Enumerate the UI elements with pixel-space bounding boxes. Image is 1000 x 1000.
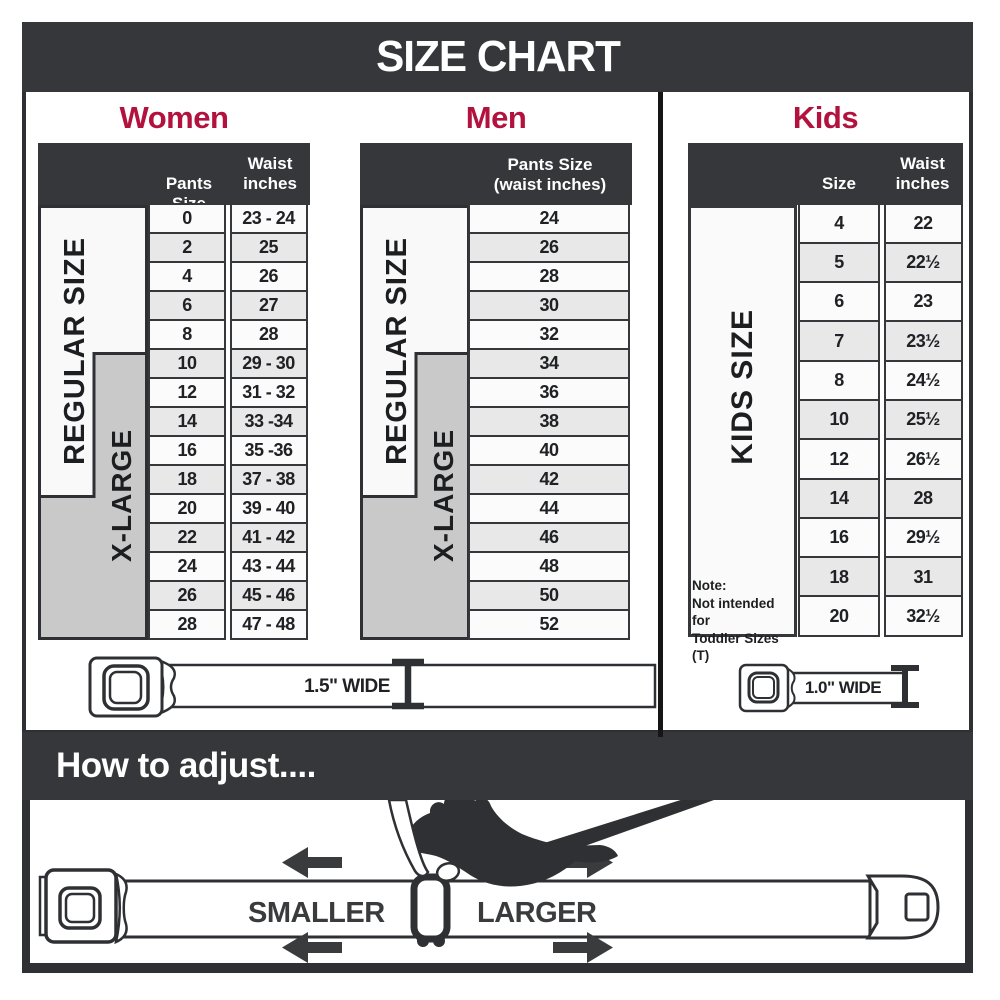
waist-cell: 31 - 32 bbox=[230, 377, 308, 409]
pants-size-cell: 2 bbox=[148, 232, 226, 264]
women-col-waist: Waist inches bbox=[230, 154, 310, 195]
waist-cell: 31 bbox=[884, 556, 963, 598]
table-row: 8 24½ bbox=[798, 360, 963, 402]
table-row: 32 bbox=[468, 319, 630, 351]
pants-size-cell: 40 bbox=[468, 435, 630, 467]
pants-size-cell: 38 bbox=[468, 406, 630, 438]
table-row: 2 25 bbox=[148, 232, 308, 264]
men-kids-divider bbox=[658, 92, 663, 737]
waist-cell: 27 bbox=[230, 290, 308, 322]
kid-size-cell: 14 bbox=[798, 478, 880, 520]
waist-cell: 45 - 46 bbox=[230, 580, 308, 612]
table-row: 4 22 bbox=[798, 203, 963, 245]
kids-col-waist: Waist inches bbox=[882, 154, 963, 195]
table-row: 22 41 - 42 bbox=[148, 522, 308, 554]
waist-cell: 43 - 44 bbox=[230, 551, 308, 583]
kid-size-cell: 6 bbox=[798, 281, 880, 323]
waist-cell: 23 - 24 bbox=[230, 203, 308, 235]
pants-size-cell: 50 bbox=[468, 580, 630, 612]
kid-size-cell: 18 bbox=[798, 556, 880, 598]
waist-cell: 25½ bbox=[884, 399, 963, 441]
table-row: 20 39 - 40 bbox=[148, 493, 308, 525]
how-to-adjust-heading: How to adjust.... bbox=[56, 746, 316, 786]
kids-note-line2: Not intended for bbox=[692, 595, 796, 630]
waist-cell: 29½ bbox=[884, 517, 963, 559]
table-row: 10 29 - 30 bbox=[148, 348, 308, 380]
table-row: 28 47 - 48 bbox=[148, 609, 308, 641]
table-row: 28 bbox=[468, 261, 630, 293]
pants-size-cell: 26 bbox=[468, 232, 630, 264]
title-bar: SIZE CHART bbox=[22, 22, 973, 92]
table-row: 44 bbox=[468, 493, 630, 525]
pants-size-cell: 20 bbox=[148, 493, 226, 525]
table-row: 12 26½ bbox=[798, 438, 963, 480]
waist-cell: 23 bbox=[884, 281, 963, 323]
pants-size-cell: 46 bbox=[468, 522, 630, 554]
kids-note-line1: Note: bbox=[692, 577, 796, 595]
kid-size-cell: 4 bbox=[798, 203, 880, 245]
waist-cell: 29 - 30 bbox=[230, 348, 308, 380]
pants-size-cell: 26 bbox=[148, 580, 226, 612]
kids-buckle-button bbox=[753, 677, 774, 698]
pants-size-cell: 48 bbox=[468, 551, 630, 583]
waist-cell: 22½ bbox=[884, 242, 963, 284]
kid-size-cell: 16 bbox=[798, 517, 880, 559]
kid-size-cell: 7 bbox=[798, 320, 880, 362]
pants-size-cell: 24 bbox=[468, 203, 630, 235]
pants-size-cell: 42 bbox=[468, 464, 630, 496]
kids-note: Note: Not intended for Toddler Sizes (T) bbox=[692, 577, 796, 665]
waist-cell: 32½ bbox=[884, 595, 963, 637]
pants-size-cell: 52 bbox=[468, 609, 630, 641]
size-chart-page: SIZE CHART Women Men Kids Pants Size Wai… bbox=[0, 0, 1000, 1000]
how-to-adjust-bar: How to adjust.... bbox=[22, 732, 973, 800]
men-col-header-line1: Pants Size bbox=[468, 155, 632, 175]
table-row: 20 32½ bbox=[798, 595, 963, 637]
belt-tab-hole bbox=[906, 894, 928, 920]
pants-size-cell: 24 bbox=[148, 551, 226, 583]
table-row: 7 23½ bbox=[798, 320, 963, 362]
pants-size-cell: 14 bbox=[148, 406, 226, 438]
waist-cell: 41 - 42 bbox=[230, 522, 308, 554]
table-row: 36 bbox=[468, 377, 630, 409]
pants-size-cell: 44 bbox=[468, 493, 630, 525]
waist-cell: 33 -34 bbox=[230, 406, 308, 438]
waist-cell: 26½ bbox=[884, 438, 963, 480]
table-row: 34 bbox=[468, 348, 630, 380]
kid-size-cell: 20 bbox=[798, 595, 880, 637]
adult-belt-width-label: 1.5" WIDE bbox=[303, 676, 391, 698]
waist-cell: 28 bbox=[884, 478, 963, 520]
table-row: 24 43 - 44 bbox=[148, 551, 308, 583]
pants-size-cell: 18 bbox=[148, 464, 226, 496]
table-row: 4 26 bbox=[148, 261, 308, 293]
arrow-left-icon bbox=[282, 847, 342, 878]
waist-cell: 39 - 40 bbox=[230, 493, 308, 525]
waist-cell: 28 bbox=[230, 319, 308, 351]
waist-cell: 24½ bbox=[884, 360, 963, 402]
table-row: 30 bbox=[468, 290, 630, 322]
waist-cell: 23½ bbox=[884, 320, 963, 362]
kids-size-table: 4 22 5 22½ 6 23 7 23½ 8 24½ bbox=[798, 205, 963, 637]
men-size-table: 24 26 28 30 32 34 36 bbox=[468, 205, 630, 640]
kids-belt-width-label: 1.0" WIDE bbox=[799, 678, 887, 698]
pants-size-cell: 36 bbox=[468, 377, 630, 409]
kid-size-cell: 8 bbox=[798, 360, 880, 402]
pants-size-cell: 16 bbox=[148, 435, 226, 467]
kids-col-size: Size bbox=[796, 174, 882, 194]
waist-cell: 47 - 48 bbox=[230, 609, 308, 641]
page-title: SIZE CHART bbox=[376, 32, 620, 82]
kid-size-cell: 5 bbox=[798, 242, 880, 284]
adult-buckle-button bbox=[110, 672, 141, 703]
belt-adjuster-slider bbox=[414, 877, 447, 939]
table-row: 18 31 bbox=[798, 556, 963, 598]
table-row: 8 28 bbox=[148, 319, 308, 351]
pants-size-cell: 6 bbox=[148, 290, 226, 322]
waist-cell: 22 bbox=[884, 203, 963, 245]
pants-size-cell: 32 bbox=[468, 319, 630, 351]
kids-size-label: KIDS SIZE bbox=[690, 207, 795, 567]
table-row: 18 37 - 38 bbox=[148, 464, 308, 496]
table-row: 40 bbox=[468, 435, 630, 467]
pants-size-cell: 10 bbox=[148, 348, 226, 380]
women-size-table: 0 23 - 24 2 25 4 26 6 27 8 28 bbox=[148, 205, 308, 640]
table-row: 46 bbox=[468, 522, 630, 554]
table-row: 14 28 bbox=[798, 478, 963, 520]
table-row: 50 bbox=[468, 580, 630, 612]
table-row: 26 bbox=[468, 232, 630, 264]
larger-label: LARGER bbox=[477, 897, 589, 930]
pants-size-cell: 4 bbox=[148, 261, 226, 293]
men-heading: Men bbox=[360, 96, 632, 140]
pants-size-cell: 8 bbox=[148, 319, 226, 351]
pants-size-cell: 34 bbox=[468, 348, 630, 380]
kid-size-cell: 10 bbox=[798, 399, 880, 441]
pants-size-cell: 30 bbox=[468, 290, 630, 322]
table-row: 38 bbox=[468, 406, 630, 438]
waist-cell: 25 bbox=[230, 232, 308, 264]
men-col-header-line2: (waist inches) bbox=[468, 175, 632, 195]
table-row: 16 29½ bbox=[798, 517, 963, 559]
women-heading: Women bbox=[38, 96, 310, 140]
pants-size-cell: 28 bbox=[468, 261, 630, 293]
table-row: 52 bbox=[468, 609, 630, 641]
adjust-illustration bbox=[22, 800, 973, 968]
adjust-buckle-button bbox=[66, 894, 94, 922]
pants-size-cell: 12 bbox=[148, 377, 226, 409]
table-row: 14 33 -34 bbox=[148, 406, 308, 438]
table-row: 10 25½ bbox=[798, 399, 963, 441]
table-row: 48 bbox=[468, 551, 630, 583]
men-xlarge-label: X-LARGE bbox=[418, 352, 470, 638]
table-row: 6 27 bbox=[148, 290, 308, 322]
waist-cell: 26 bbox=[230, 261, 308, 293]
men-col-header: Pants Size (waist inches) bbox=[468, 155, 632, 196]
kid-size-cell: 12 bbox=[798, 438, 880, 480]
pants-size-cell: 22 bbox=[148, 522, 226, 554]
table-row: 12 31 - 32 bbox=[148, 377, 308, 409]
women-xlarge-label: X-LARGE bbox=[96, 352, 148, 638]
table-row: 6 23 bbox=[798, 281, 963, 323]
waist-cell: 37 - 38 bbox=[230, 464, 308, 496]
table-row: 16 35 -36 bbox=[148, 435, 308, 467]
waist-cell: 35 -36 bbox=[230, 435, 308, 467]
table-row: 5 22½ bbox=[798, 242, 963, 284]
table-row: 42 bbox=[468, 464, 630, 496]
kids-heading: Kids bbox=[688, 96, 963, 140]
smaller-label: SMALLER bbox=[248, 897, 376, 930]
table-row: 26 45 - 46 bbox=[148, 580, 308, 612]
pants-size-cell: 28 bbox=[148, 609, 226, 641]
table-row: 0 23 - 24 bbox=[148, 203, 308, 235]
table-row: 24 bbox=[468, 203, 630, 235]
pants-size-cell: 0 bbox=[148, 203, 226, 235]
